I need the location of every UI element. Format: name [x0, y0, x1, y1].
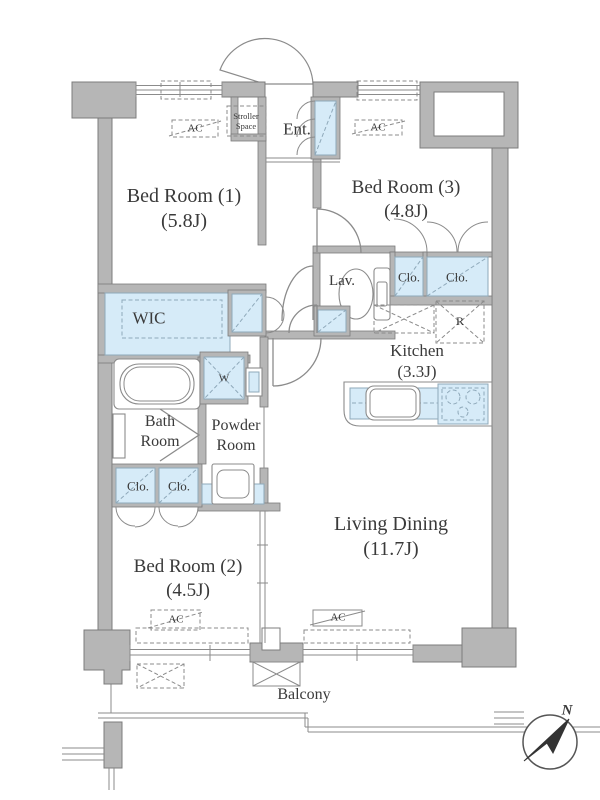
bedroom2-partition — [257, 511, 268, 643]
kitchen-size: (3.3J) — [390, 361, 444, 382]
kitchen-label: Kitchen (3.3J) — [390, 340, 444, 382]
ac-label-bedroom3: AC — [370, 122, 385, 135]
bedroom2-size: (4.5J) — [134, 579, 243, 603]
bedroom3-label: Bed Room (3) (4.8J) — [352, 176, 461, 224]
entrance-label: Ent. — [283, 119, 311, 140]
bath-label: Bath Room — [128, 412, 192, 452]
hall-closet — [228, 290, 284, 336]
living-dining-door — [273, 338, 321, 386]
powder-washbasin — [202, 464, 264, 504]
entrance-door-arc — [220, 39, 313, 84]
living-dining-name: Living Dining — [334, 512, 448, 537]
closet-label-1: Clo. — [127, 479, 149, 494]
washing-machine-label: W — [219, 373, 229, 386]
ac-label-bedroom2: AC — [168, 614, 183, 627]
living-dining-window — [303, 630, 413, 661]
balcony-label: Balcony — [277, 685, 330, 705]
living-dining-size: (11.7J) — [334, 537, 448, 562]
closet-label-4: Clo. — [446, 270, 468, 285]
wic-label: WIC — [132, 308, 165, 329]
refrigerator-label: R — [456, 314, 464, 328]
bedroom1-window — [136, 81, 222, 99]
balcony-hatch-dashed — [137, 664, 184, 688]
bedroom2-closets — [112, 464, 202, 527]
bedroom1-label: Bed Room (1) (5.8J) — [127, 184, 241, 234]
ac-label-bedroom1: AC — [187, 123, 202, 136]
bedroom2-window — [130, 628, 250, 661]
lav-label: Lav. — [329, 272, 355, 290]
bedroom2-label: Bed Room (2) (4.5J) — [134, 555, 243, 603]
stroller-space-label: Stroller Space — [228, 111, 264, 131]
bedroom2-name: Bed Room (2) — [134, 555, 243, 579]
stove — [438, 384, 488, 424]
bedroom3-name: Bed Room (3) — [352, 176, 461, 200]
bedroom3-size: (4.8J) — [352, 200, 461, 224]
closet-label-2: Clo. — [168, 479, 190, 494]
bedroom3-window — [357, 81, 420, 100]
living-dining-label: Living Dining (11.7J) — [334, 512, 448, 562]
floor-plan: Bed Room (1) (5.8J) Bed Room (3) (4.8J) … — [0, 0, 600, 800]
bedroom1-size: (5.8J) — [127, 209, 241, 234]
balcony-railing — [98, 670, 600, 732]
kitchen-name: Kitchen — [390, 340, 444, 361]
lav-cabinet — [314, 306, 350, 336]
wic-fixture — [105, 293, 230, 355]
balcony-hatch — [253, 662, 300, 686]
compass-north-label: N — [562, 703, 573, 720]
compass — [523, 715, 577, 769]
neighbor-partition-lines — [62, 712, 524, 790]
closet-label-3: Clo. — [398, 270, 420, 285]
powder-label: Powder Room — [198, 416, 274, 456]
bedroom1-name: Bed Room (1) — [127, 184, 241, 209]
ac-label-living-dining: AC — [330, 612, 345, 625]
water-heater — [246, 368, 262, 396]
